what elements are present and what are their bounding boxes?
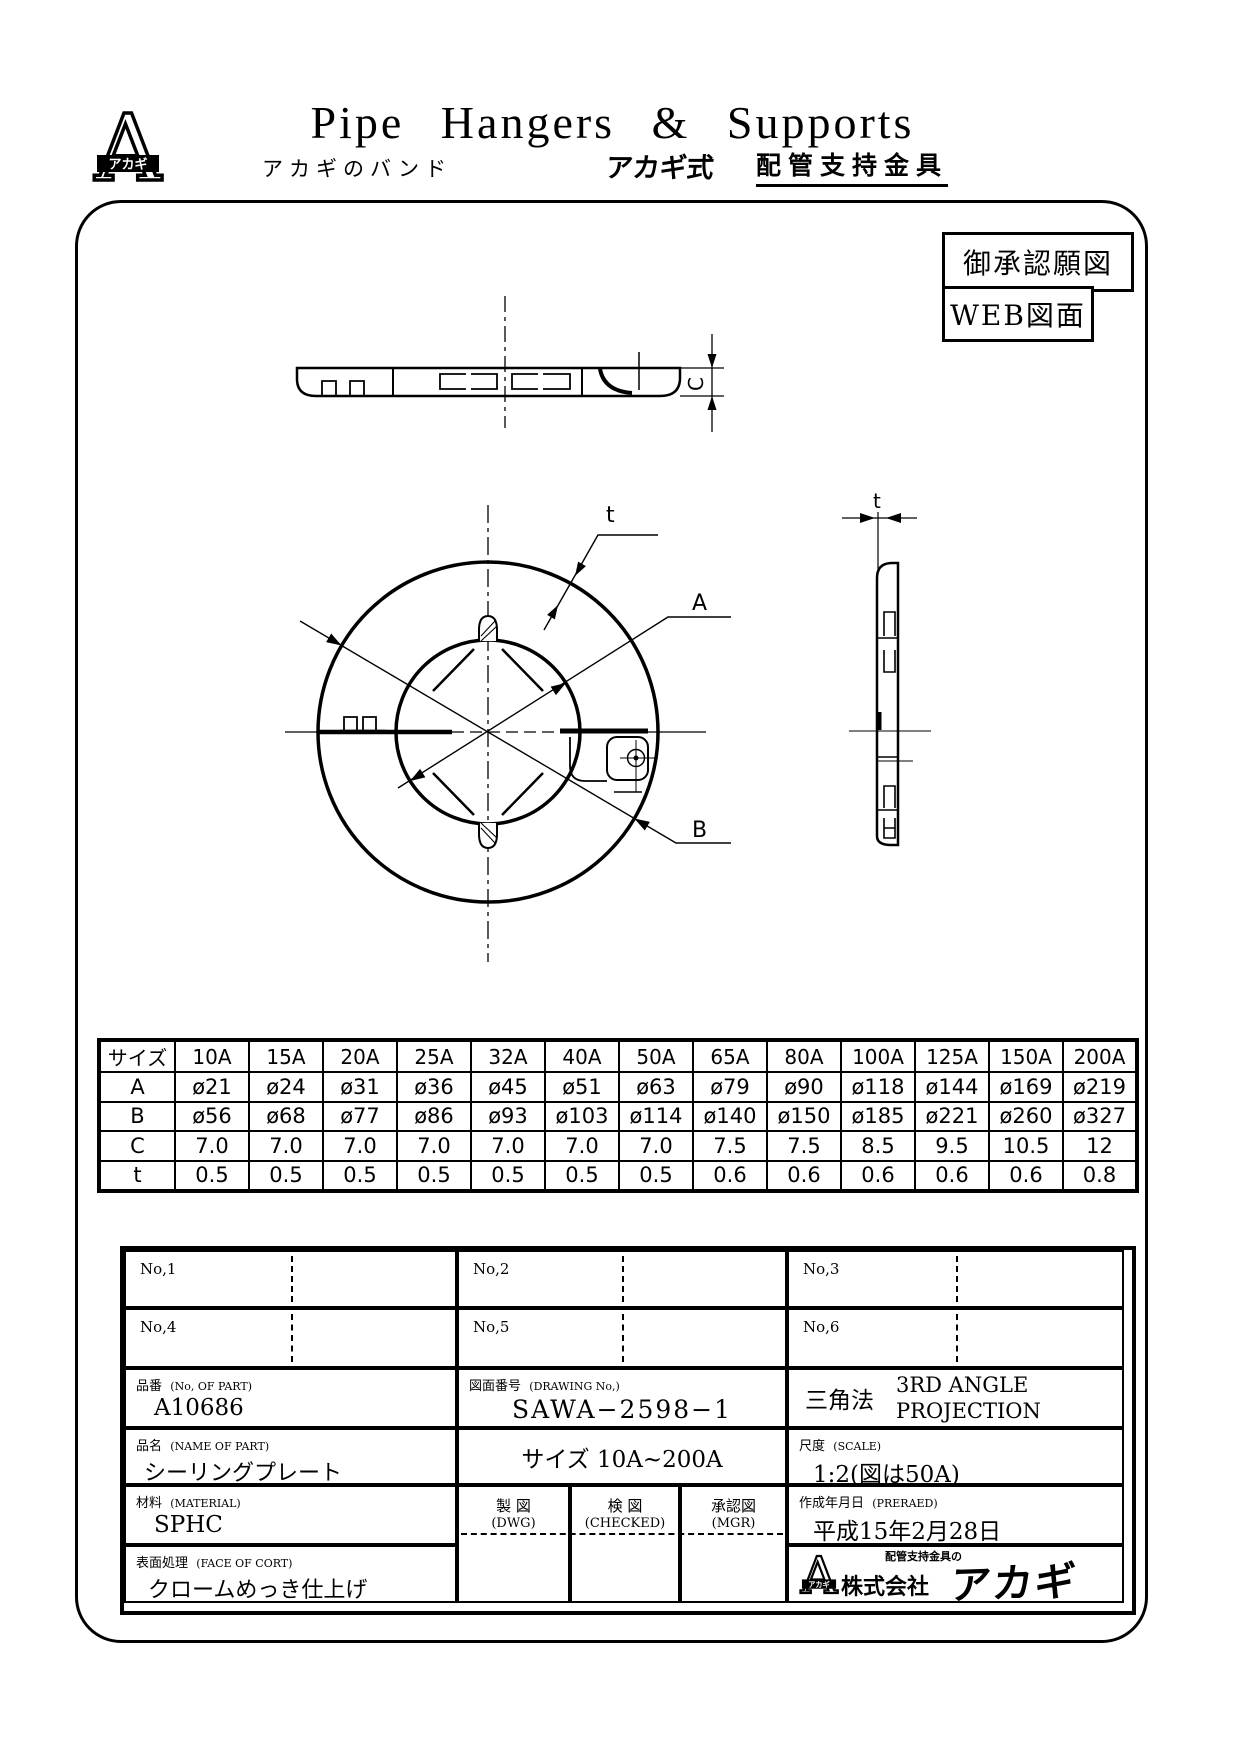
table-cell: ø93 — [471, 1102, 545, 1132]
company-cell: A アカギ 配管支持金具の 株式会社 アカギ — [787, 1545, 1124, 1603]
date-label: 作成年月日 — [799, 1496, 864, 1511]
divider — [956, 1314, 958, 1362]
company-brand: アカギ — [948, 1549, 1081, 1603]
note-cell-5: No,5 — [457, 1308, 787, 1368]
table-cell: 0.8 — [1063, 1161, 1137, 1192]
table-cell: ø169 — [989, 1072, 1063, 1102]
date-label-en: (PRERAED) — [872, 1497, 937, 1510]
table-cell: 0.5 — [619, 1161, 693, 1192]
divider — [291, 1314, 293, 1362]
checked-label-en: (CHECKED) — [572, 1516, 678, 1531]
table-cell: ø77 — [323, 1102, 397, 1132]
size-column-header: 80A — [767, 1040, 841, 1072]
table-cell: ø150 — [767, 1102, 841, 1132]
part-number-value: A10686 — [126, 1395, 455, 1421]
table-cell: ø36 — [397, 1072, 471, 1102]
company-tagline: 配管支持金具の — [885, 1548, 962, 1564]
part-name-value: シーリングプレート — [126, 1455, 455, 1487]
dim-label-a: A — [692, 591, 707, 616]
table-cell: ø68 — [249, 1102, 323, 1132]
table-cell: 0.5 — [545, 1161, 619, 1192]
size-column-header: 10A — [175, 1040, 249, 1072]
table-cell: 7.0 — [249, 1131, 323, 1161]
dim-label-b: B — [692, 818, 707, 843]
table-cell: 0.5 — [323, 1161, 397, 1192]
subtitle-pipe-supports: 配管支持金具 — [756, 146, 948, 187]
table-cell: 12 — [1063, 1131, 1137, 1161]
drawing-number-label: 図面番号 — [469, 1379, 521, 1394]
table-cell: 9.5 — [915, 1131, 989, 1161]
table-cell: ø24 — [249, 1072, 323, 1102]
table-cell: 0.6 — [693, 1161, 767, 1192]
surface-finish-label: 表面処理 — [136, 1556, 188, 1571]
table-cell: ø45 — [471, 1072, 545, 1102]
divider — [622, 1314, 624, 1362]
akagi-logo-letter: A — [800, 1550, 839, 1600]
size-column-header: 25A — [397, 1040, 471, 1072]
scale-value: 1:2(図は50A) — [789, 1455, 1122, 1489]
surface-finish-value: クロームめっき仕上げ — [126, 1572, 455, 1604]
divider — [956, 1256, 958, 1302]
row-label-B: B — [99, 1102, 175, 1132]
note-cell-4: No,4 — [124, 1308, 457, 1368]
material-cell: 材料 (MATERIAL) SPHC — [124, 1485, 457, 1545]
dim-label-c: C — [684, 377, 708, 391]
part-name-cell: 品名 (NAME OF PART) シーリングプレート — [124, 1428, 457, 1485]
table-cell: ø63 — [619, 1072, 693, 1102]
table-cell: ø103 — [545, 1102, 619, 1132]
table-cell: 0.5 — [397, 1161, 471, 1192]
size-column-header: 40A — [545, 1040, 619, 1072]
size-column-header: 32A — [471, 1040, 545, 1072]
table-cell: 8.5 — [841, 1131, 915, 1161]
material-label: 材料 — [136, 1496, 162, 1511]
size-column-header: 20A — [323, 1040, 397, 1072]
material-value: SPHC — [126, 1512, 455, 1538]
page-title: Pipe Hangers & Supports — [0, 96, 1225, 149]
table-cell: ø114 — [619, 1102, 693, 1132]
checked-sign-cell: 検 図 (CHECKED) — [570, 1485, 680, 1603]
table-cell: 7.0 — [619, 1131, 693, 1161]
size-range-value: サイズ 10A~200A — [521, 1440, 722, 1474]
drawing-number-value: SAWA−2598−1 — [459, 1395, 785, 1424]
table-cell: 7.5 — [693, 1131, 767, 1161]
akagi-logo-small: A アカギ — [797, 1550, 841, 1600]
subtitle-brand: アカギ式 — [604, 146, 716, 185]
table-cell: 0.6 — [841, 1161, 915, 1192]
dim-label-t: t — [606, 503, 615, 528]
divider — [622, 1256, 624, 1302]
arrowhead-icon — [886, 513, 901, 523]
approver-label-en: (MGR) — [682, 1516, 785, 1531]
part-name-label: 品名 — [136, 1439, 162, 1454]
table-cell: ø221 — [915, 1102, 989, 1132]
company-corp: 株式会社 — [841, 1569, 929, 1601]
note-cell-1: No,1 — [124, 1250, 457, 1308]
table-cell: ø118 — [841, 1072, 915, 1102]
drawing-sheet: A アカギ Pipe Hangers & Supports アカギのバンド アカ… — [0, 0, 1241, 1755]
checked-label: 検 図 — [572, 1487, 678, 1516]
size-range-cell: サイズ 10A~200A — [457, 1428, 787, 1485]
dim-label-t-side: t — [873, 489, 881, 513]
row-label-C: C — [99, 1131, 175, 1161]
table-cell: 0.6 — [767, 1161, 841, 1192]
table-cell: ø185 — [841, 1102, 915, 1132]
size-column-header: 65A — [693, 1040, 767, 1072]
part-number-label: 品番 — [136, 1379, 162, 1394]
table-cell: ø21 — [175, 1072, 249, 1102]
size-column-header: 15A — [249, 1040, 323, 1072]
front-view: B A t — [285, 503, 731, 962]
note-cell-3: No,3 — [787, 1250, 1124, 1308]
table-cell: 0.5 — [175, 1161, 249, 1192]
table-cell: ø51 — [545, 1072, 619, 1102]
surface-finish-cell: 表面処理 (FACE OF CORT) クロームめっき仕上げ — [124, 1545, 457, 1603]
size-table: サイズ 10A 15A 20A 25A 32A 40A 50A 65A 80A … — [97, 1038, 1139, 1193]
part-number-label-en: (No, OF PART) — [170, 1380, 252, 1393]
table-cell: 7.0 — [471, 1131, 545, 1161]
table-cell: 0.6 — [915, 1161, 989, 1192]
surface-finish-label-en: (FACE OF CORT) — [196, 1557, 292, 1570]
drawing-number-cell: 図面番号 (DRAWING No,) SAWA−2598−1 — [457, 1368, 787, 1428]
arrowhead-icon — [547, 603, 562, 620]
note-cell-2: No,2 — [457, 1250, 787, 1308]
size-column-header: 200A — [1063, 1040, 1137, 1072]
date-value: 平成15年2月28日 — [789, 1512, 1122, 1546]
part-name-label-en: (NAME OF PART) — [170, 1440, 269, 1453]
part-number-cell: 品番 (No, OF PART) A10686 — [124, 1368, 457, 1428]
arrowhead-icon — [860, 513, 875, 523]
approver-label: 承認図 — [682, 1487, 785, 1516]
row-label-A: A — [99, 1072, 175, 1102]
side-view: t — [842, 489, 931, 845]
size-column-header: 50A — [619, 1040, 693, 1072]
dwg-label: 製 図 — [459, 1487, 568, 1516]
table-cell: ø140 — [693, 1102, 767, 1132]
table-cell: 10.5 — [989, 1131, 1063, 1161]
title-block: No,1 No,2 No,3 No,4 No,5 No,6 品番 (No, OF… — [120, 1246, 1136, 1615]
projection-en-2: PROJECTION — [896, 1398, 1041, 1424]
table-cell: ø56 — [175, 1102, 249, 1132]
arrowhead-icon — [708, 354, 717, 368]
projection-en-1: 3RD ANGLE — [896, 1372, 1041, 1398]
size-column-header: 100A — [841, 1040, 915, 1072]
scale-label: 尺度 — [799, 1439, 825, 1454]
arrowhead-icon — [571, 562, 586, 579]
technical-drawing: C B A t — [75, 200, 1142, 1050]
table-cell: ø327 — [1063, 1102, 1137, 1132]
projection-method: 三角法 — [789, 1381, 874, 1415]
table-cell: 0.5 — [249, 1161, 323, 1192]
approver-sign-cell: 承認図 (MGR) — [680, 1485, 787, 1603]
note-cell-6: No,6 — [787, 1308, 1124, 1368]
table-cell: ø31 — [323, 1072, 397, 1102]
table-cell: ø90 — [767, 1072, 841, 1102]
date-cell: 作成年月日 (PRERAED) 平成15年2月28日 — [787, 1485, 1124, 1545]
table-cell: 7.0 — [323, 1131, 397, 1161]
akagi-logo-band-text: アカギ — [808, 1580, 829, 1589]
material-label-en: (MATERIAL) — [170, 1497, 240, 1510]
table-cell: ø144 — [915, 1072, 989, 1102]
size-column-header: 150A — [989, 1040, 1063, 1072]
table-cell: ø86 — [397, 1102, 471, 1132]
table-cell: ø79 — [693, 1072, 767, 1102]
top-view: C — [297, 296, 724, 432]
table-cell: 7.0 — [397, 1131, 471, 1161]
drawing-number-label-en: (DRAWING No,) — [529, 1380, 620, 1393]
table-cell: 7.5 — [767, 1131, 841, 1161]
table-cell: ø219 — [1063, 1072, 1137, 1102]
table-cell: 7.0 — [175, 1131, 249, 1161]
scale-cell: 尺度 (SCALE) 1:2(図は50A) — [787, 1428, 1124, 1485]
row-label-t: t — [99, 1161, 175, 1192]
akagi-logo-band-text: アカギ — [108, 157, 147, 173]
scale-label-en: (SCALE) — [833, 1440, 881, 1453]
sign-divider — [461, 1533, 783, 1535]
table-cell: 0.6 — [989, 1161, 1063, 1192]
dwg-label-en: (DWG) — [459, 1516, 568, 1531]
table-cell: ø260 — [989, 1102, 1063, 1132]
subtitle-akagi-band: アカギのバンド — [262, 153, 452, 183]
table-cell: 0.5 — [471, 1161, 545, 1192]
table-cell: 7.0 — [545, 1131, 619, 1161]
divider — [291, 1256, 293, 1302]
arrowhead-icon — [708, 396, 717, 410]
projection-cell: 三角法 3RD ANGLE PROJECTION — [787, 1368, 1124, 1428]
dwg-sign-cell: 製 図 (DWG) — [457, 1485, 570, 1603]
size-column-header: 125A — [915, 1040, 989, 1072]
size-table-corner: サイズ — [99, 1040, 175, 1072]
